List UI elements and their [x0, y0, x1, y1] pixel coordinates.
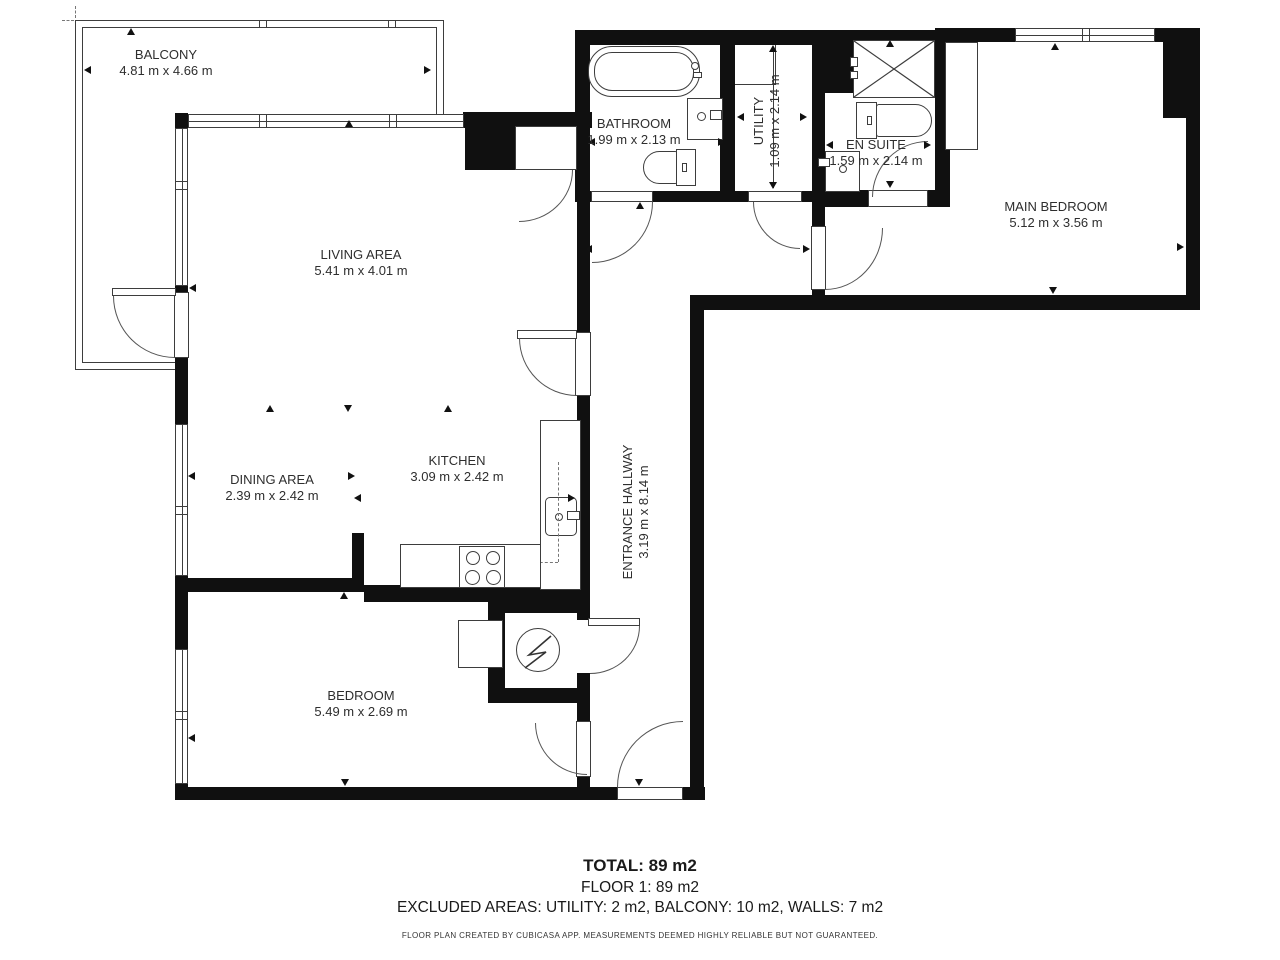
window-divider	[175, 189, 188, 190]
balcony-corner-dash	[62, 20, 74, 21]
window	[175, 424, 188, 576]
room-label-dining: DINING AREA 2.39 m x 2.42 m	[225, 472, 318, 504]
window-divider	[175, 506, 188, 507]
dim-arrow-down-icon	[635, 779, 643, 786]
summary-excluded: EXCLUDED AREAS: UTILITY: 2 m2, BALCONY: …	[0, 899, 1280, 917]
dim-arrow-down-icon	[1049, 287, 1057, 294]
sink-basin	[697, 112, 706, 121]
summary-disclaimer: FLOOR PLAN CREATED BY CUBICASA APP. MEAS…	[0, 931, 1280, 940]
stove-burner	[465, 570, 480, 585]
dim-arrow-up-icon	[769, 45, 777, 52]
door-leaf	[811, 226, 826, 290]
room-name: UTILITY	[751, 74, 767, 167]
counter-dash	[558, 462, 559, 562]
kitchen-faucet	[555, 513, 563, 521]
door-arc	[617, 721, 683, 787]
wall-segment	[1163, 42, 1200, 118]
room-name: BALCONY	[119, 47, 212, 63]
room-name: KITCHEN	[410, 453, 503, 469]
window-divider	[1089, 28, 1090, 42]
wall-segment	[690, 310, 704, 800]
wall-segment	[690, 295, 1200, 310]
room-dims: 5.41 m x 4.01 m	[314, 263, 407, 279]
dim-arrow-right-icon	[1177, 243, 1184, 251]
balcony-rail	[82, 362, 176, 363]
room-name: MAIN BEDROOM	[1004, 199, 1107, 215]
room-dims: 1.99 m x 2.13 m	[587, 132, 680, 148]
window-divider	[175, 719, 188, 720]
shower	[853, 40, 935, 98]
room-name: BEDROOM	[314, 688, 407, 704]
dim-arrow-right-icon	[424, 66, 431, 74]
dim-arrow-up-icon	[641, 38, 649, 45]
balcony-rail	[436, 27, 437, 116]
door-arc	[825, 228, 883, 290]
window-divider	[175, 711, 188, 712]
dim-arrow-left-icon	[737, 113, 744, 121]
dim-arrow-right-icon	[803, 245, 810, 253]
toilet	[643, 151, 678, 184]
sink-fitting	[818, 158, 830, 167]
wardrobe	[458, 620, 503, 668]
window	[175, 128, 188, 286]
water-heater-icon	[516, 628, 560, 672]
door-leaf	[617, 787, 683, 800]
stove-burner	[466, 551, 480, 565]
shower-head	[850, 71, 858, 79]
dim-arrow-down-icon	[344, 405, 352, 412]
room-name: BATHROOM	[587, 116, 680, 132]
stove-burner	[486, 551, 500, 565]
window-divider	[259, 114, 260, 128]
dim-arrow-up-icon	[266, 405, 274, 412]
balcony-rail-divider	[266, 20, 267, 28]
dim-arrow-left-icon	[188, 472, 195, 480]
dim-arrow-up-icon	[345, 120, 353, 127]
wall-segment	[175, 357, 188, 425]
room-label-kitchen: KITCHEN 3.09 m x 2.42 m	[410, 453, 503, 485]
window-divider	[175, 181, 188, 182]
balcony-rail	[75, 20, 76, 370]
window-divider	[175, 514, 188, 515]
room-label-ensuite: EN SUITE 1.59 m x 2.14 m	[829, 137, 922, 169]
dim-arrow-left-icon	[354, 494, 361, 502]
window-divider	[389, 114, 390, 128]
wall-segment	[812, 290, 825, 310]
wall-segment	[488, 602, 585, 613]
room-name: EN SUITE	[829, 137, 922, 153]
bathtub-inner	[594, 52, 694, 91]
dim-arrow-right-icon	[568, 494, 575, 502]
door-arc	[592, 202, 653, 263]
door-leaf	[575, 332, 591, 396]
summary-total: TOTAL: 89 m2	[0, 856, 1280, 876]
toilet	[876, 104, 932, 137]
dim-arrow-down-icon	[341, 779, 349, 786]
dim-arrow-left-icon	[189, 284, 196, 292]
wall-segment	[465, 128, 515, 170]
balcony-rail-divider	[388, 20, 389, 28]
window	[175, 649, 188, 784]
room-dims: 4.81 m x 4.66 m	[119, 63, 212, 79]
wall-segment	[175, 783, 188, 800]
wardrobe	[945, 42, 978, 150]
wall-segment	[1186, 118, 1200, 310]
dim-arrow-left-icon	[84, 66, 91, 74]
room-dims: 3.19 m x 8.14 m	[636, 445, 652, 580]
dim-arrow-up-icon	[444, 405, 452, 412]
room-dims: 2.39 m x 2.42 m	[225, 488, 318, 504]
dim-arrow-left-icon	[188, 734, 195, 742]
stove-burner	[486, 570, 501, 585]
room-name: LIVING AREA	[314, 247, 407, 263]
window	[1015, 28, 1155, 42]
dim-arrow-up-icon	[636, 202, 644, 209]
balcony-rail-divider	[395, 20, 396, 28]
door-arc	[535, 723, 587, 775]
room-name: DINING AREA	[225, 472, 318, 488]
balcony-rail-divider	[259, 20, 260, 28]
door-leaf	[591, 191, 653, 202]
toilet-button	[682, 163, 687, 172]
door-arc	[753, 202, 800, 249]
door-arc	[590, 626, 640, 674]
door-opening	[577, 620, 590, 673]
wall-segment	[505, 688, 585, 703]
room-label-bathroom: BATHROOM 1.99 m x 2.13 m	[587, 116, 680, 148]
sink-fitting	[710, 110, 722, 120]
room-label-balcony: BALCONY 4.81 m x 4.66 m	[119, 47, 212, 79]
toilet-button	[867, 116, 872, 125]
wall-segment	[577, 202, 590, 333]
wall-segment	[352, 533, 364, 592]
dim-arrow-right-icon	[348, 472, 355, 480]
window-divider	[396, 114, 397, 128]
room-name: ENTRANCE HALLWAY	[620, 445, 636, 580]
window	[188, 114, 464, 128]
bathtub-faucet	[693, 72, 702, 78]
dim-arrow-right-icon	[718, 138, 725, 146]
kitchen-fitting	[567, 511, 580, 520]
room-dims: 3.09 m x 2.42 m	[410, 469, 503, 485]
wall-segment	[812, 30, 825, 202]
wall-segment	[577, 775, 590, 800]
bathtub-faucet	[691, 62, 699, 70]
summary-floor: FLOOR 1: 89 m2	[0, 879, 1280, 897]
room-label-bedroom: BEDROOM 5.49 m x 2.69 m	[314, 688, 407, 720]
wall-segment	[575, 30, 590, 191]
balcony-rail	[82, 27, 83, 363]
dim-arrow-up-icon	[340, 592, 348, 599]
room-label-main-bedroom: MAIN BEDROOM 5.12 m x 3.56 m	[1004, 199, 1107, 231]
dim-arrow-down-icon	[769, 182, 777, 189]
closet	[515, 126, 577, 170]
door-leaf	[748, 191, 802, 202]
balcony-rail	[443, 20, 444, 116]
room-dims: 5.49 m x 2.69 m	[314, 704, 407, 720]
balcony-rail	[75, 369, 176, 370]
window-divider	[266, 114, 267, 128]
room-dims: 5.12 m x 3.56 m	[1004, 215, 1107, 231]
door-arc	[519, 170, 573, 222]
door-leaf	[112, 288, 176, 296]
balcony-corner-dash	[75, 6, 76, 18]
room-dims: 1.09 m x 2.14 m	[767, 74, 783, 167]
dim-arrow-right-icon	[924, 141, 931, 149]
door-leaf	[588, 618, 640, 626]
room-label-hallway: ENTRANCE HALLWAY 3.19 m x 8.14 m	[620, 445, 652, 580]
door-arc	[113, 296, 175, 358]
room-label-living: LIVING AREA 5.41 m x 4.01 m	[314, 247, 407, 279]
dim-arrow-up-icon	[1051, 43, 1059, 50]
door-arc	[519, 338, 577, 396]
shower-head	[850, 57, 858, 67]
room-dims: 1.59 m x 2.14 m	[829, 153, 922, 169]
dim-arrow-up-icon	[127, 28, 135, 35]
wall-segment	[175, 578, 364, 592]
dim-arrow-left-icon	[585, 245, 592, 253]
door-leaf	[174, 292, 189, 358]
window-divider	[1082, 28, 1083, 42]
dim-arrow-right-icon	[800, 113, 807, 121]
dim-arrow-up-icon	[886, 40, 894, 47]
floor-plan: BALCONY 4.81 m x 4.66 m LIVING AREA 5.41…	[0, 0, 1280, 960]
room-label-utility: UTILITY 1.09 m x 2.14 m	[751, 74, 783, 167]
wall-segment	[812, 202, 825, 228]
dim-arrow-down-icon	[886, 181, 894, 188]
